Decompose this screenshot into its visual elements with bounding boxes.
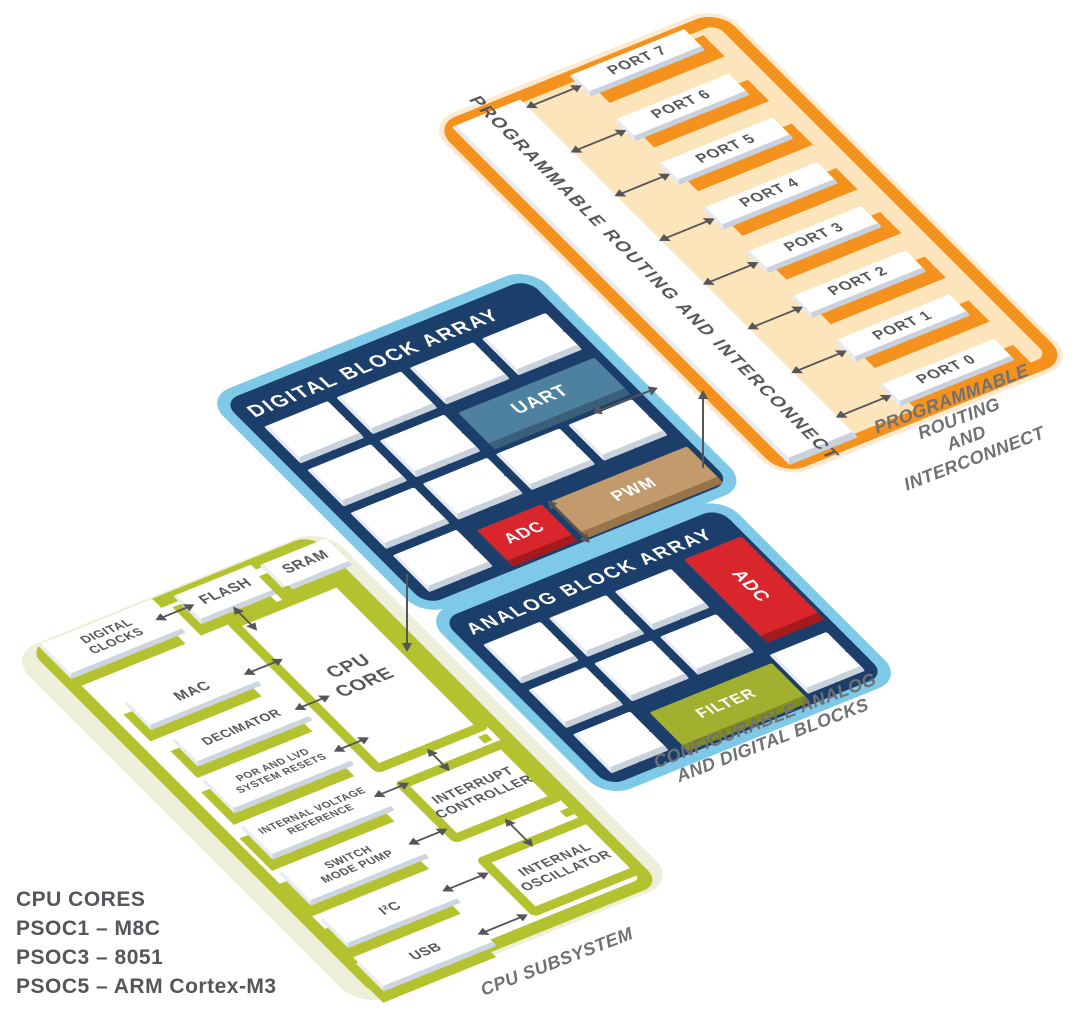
tile-link-icon <box>456 577 474 589</box>
analog-grid: ADCFILTER <box>483 542 866 773</box>
tile-link-icon <box>655 688 673 700</box>
psoc-architecture-diagram: PROGRAMMABLE ROUTING AND INTERCONNECT PO… <box>0 0 1080 1030</box>
digital-cpu-connector <box>406 574 408 644</box>
legend-title: CPU CORES <box>16 886 277 915</box>
tile-link-icon <box>635 759 653 771</box>
cpu-cores-legend: CPU CORES PSOC1 – M8C PSOC3 – 8051 PSOC5… <box>16 886 277 1002</box>
routing-analog-connector <box>702 398 704 468</box>
tile-link-icon <box>631 446 649 458</box>
tile-link-icon <box>486 504 504 516</box>
tile-link-icon <box>558 475 576 487</box>
legend-item: PSOC1 – M8C <box>16 915 277 944</box>
legend-item: PSOC5 – ARM Cortex-M3 <box>16 973 277 1002</box>
tile-link-icon <box>721 661 739 673</box>
legend-item: PSOC3 – 8051 <box>16 944 277 973</box>
